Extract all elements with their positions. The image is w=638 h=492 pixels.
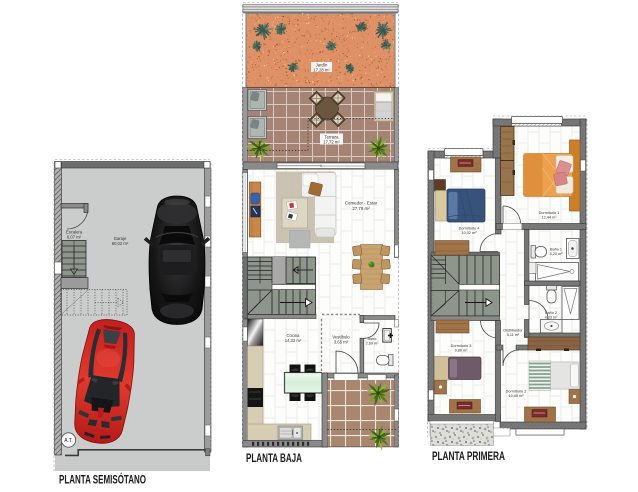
- svg-text:Distribuidor: Distribuidor: [503, 329, 523, 333]
- svg-text:5,11 m²: 5,11 m²: [507, 333, 520, 337]
- svg-text:PLANTA PRIMERA: PLANTA PRIMERA: [432, 451, 505, 463]
- svg-text:PLANTA SEMISÓTANO: PLANTA SEMISÓTANO: [59, 474, 146, 487]
- svg-text:Dormitorio 2: Dormitorio 2: [506, 390, 527, 394]
- svg-text:Baño 1: Baño 1: [550, 248, 562, 252]
- svg-text:3,65 m²: 3,65 m²: [334, 340, 349, 345]
- svg-text:9,80 m²: 9,80 m²: [455, 349, 469, 353]
- svg-text:17,28 m²: 17,28 m²: [313, 68, 330, 73]
- svg-text:6,07 m²: 6,07 m²: [67, 235, 82, 240]
- svg-text:10,40 m²: 10,40 m²: [509, 394, 525, 398]
- svg-text:A.T.: A.T.: [64, 438, 73, 444]
- svg-text:14,32 m²: 14,32 m²: [285, 338, 302, 343]
- svg-text:Dormitorio 1: Dormitorio 1: [539, 211, 560, 215]
- svg-text:4,03 m²: 4,03 m²: [545, 316, 559, 320]
- svg-text:PLANTA BAJA: PLANTA BAJA: [246, 453, 302, 465]
- svg-text:2,69 m²: 2,69 m²: [366, 342, 380, 346]
- svg-text:4,20 m²: 4,20 m²: [550, 252, 564, 256]
- svg-text:Dormitorio 3: Dormitorio 3: [451, 344, 472, 348]
- svg-text:Aseo: Aseo: [368, 337, 377, 341]
- svg-text:10,02 m²: 10,02 m²: [462, 231, 478, 235]
- svg-text:17,72 m²: 17,72 m²: [323, 140, 340, 145]
- svg-text:12,44 m²: 12,44 m²: [542, 216, 558, 220]
- svg-text:27,78 m²: 27,78 m²: [352, 206, 370, 211]
- svg-text:Dormitorio 4: Dormitorio 4: [459, 227, 480, 231]
- svg-text:60,02 m²: 60,02 m²: [112, 241, 129, 246]
- svg-text:Comedor - Estar: Comedor - Estar: [345, 201, 378, 206]
